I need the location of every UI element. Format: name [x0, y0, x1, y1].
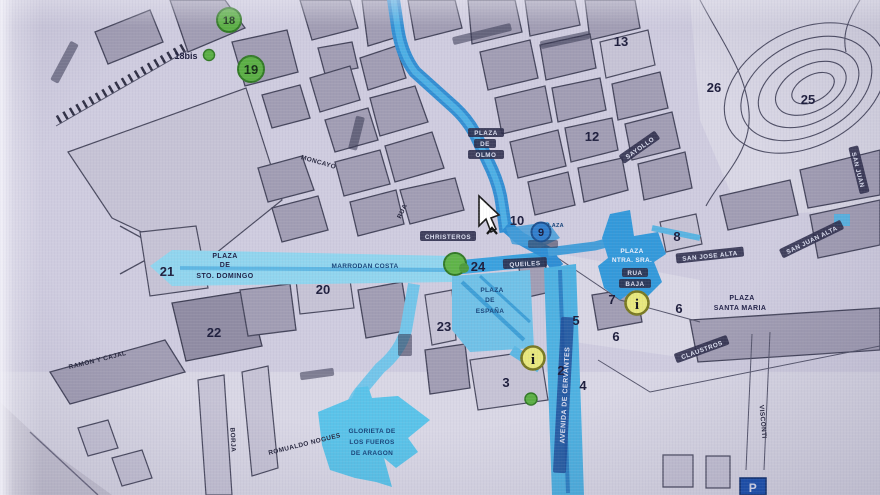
map-number-3: 3: [502, 375, 509, 390]
map-number-12: 12: [585, 129, 599, 144]
map-number-25: 25: [801, 92, 815, 107]
svg-text:CHRISTEROS: CHRISTEROS: [425, 234, 471, 241]
svg-text:OLMO: OLMO: [476, 152, 497, 159]
marker-green-dot[interactable]: [525, 393, 537, 405]
map-number-10: 10: [510, 213, 524, 228]
marker-24-lobe: [459, 263, 469, 273]
svg-text:STO. DOMINGO: STO. DOMINGO: [196, 273, 253, 280]
map-number-13: 13: [614, 34, 628, 49]
street-label-marrodan-costa: MARRODAN COSTA: [332, 263, 399, 270]
parking-icon[interactable]: P: [740, 478, 766, 495]
svg-text:i: i: [531, 352, 535, 368]
svg-text:i: i: [635, 297, 639, 313]
route-node-9: 9: [532, 223, 551, 242]
svg-text:PLAZA: PLAZA: [620, 248, 643, 255]
svg-text:DE: DE: [480, 141, 490, 148]
map-number-21: 21: [160, 264, 174, 279]
info-icon-cervantes[interactable]: i: [522, 347, 545, 370]
svg-text:PLAZA: PLAZA: [729, 295, 754, 302]
map-number-4: 4: [579, 378, 587, 393]
map-number-18bis: 18bis: [174, 51, 197, 61]
map-number-5: 5: [572, 313, 579, 328]
map-number-8: 8: [673, 229, 680, 244]
street-label-christeros: CHRISTEROS: [420, 231, 476, 241]
svg-text:P: P: [749, 481, 758, 495]
marker-18bis[interactable]: [204, 50, 215, 61]
map-number-23: 23: [437, 319, 451, 334]
svg-text:DE: DE: [485, 297, 495, 304]
svg-text:GLORIETA DE: GLORIETA DE: [349, 428, 396, 435]
map-number-6a: 6: [675, 301, 682, 316]
svg-text:ESPAÑA: ESPAÑA: [476, 306, 504, 315]
map-canvas[interactable]: MONCAYO MARRODAN COSTA CHRISTEROS RUA QU…: [0, 0, 880, 495]
glorieta-label: GLORIETA DE LOS FUEROS DE ARAGON: [349, 428, 396, 457]
svg-text:SANTA MARIA: SANTA MARIA: [714, 305, 767, 312]
map-number-7: 7: [608, 292, 615, 307]
map-number-20: 20: [316, 282, 330, 297]
svg-text:BAJA: BAJA: [625, 281, 644, 288]
svg-text:DE ARAGON: DE ARAGON: [351, 450, 393, 457]
map-number-24: 24: [471, 259, 486, 274]
info-icon-santa-maria[interactable]: i: [626, 292, 649, 315]
svg-text:PLAZA: PLAZA: [212, 253, 237, 260]
map-number-18: 18: [223, 15, 235, 27]
svg-text:LOS FUEROS: LOS FUEROS: [349, 439, 395, 446]
street-label-borja: BORJA: [228, 427, 236, 452]
map-number-2: 2: [557, 363, 564, 378]
map-number-26: 26: [707, 80, 721, 95]
svg-text:RUA: RUA: [627, 270, 642, 277]
map-number-22: 22: [207, 325, 221, 340]
svg-text:PLAZA: PLAZA: [474, 130, 498, 137]
map-number-19: 19: [244, 62, 258, 77]
map-number-9: 9: [538, 227, 544, 239]
map-number-6b: 6: [612, 329, 619, 344]
svg-text:NTRA. SRA.: NTRA. SRA.: [612, 257, 652, 264]
map-photo: MONCAYO MARRODAN COSTA CHRISTEROS RUA QU…: [0, 0, 880, 495]
svg-text:DE: DE: [220, 262, 231, 269]
svg-text:PLAZA: PLAZA: [480, 287, 503, 294]
